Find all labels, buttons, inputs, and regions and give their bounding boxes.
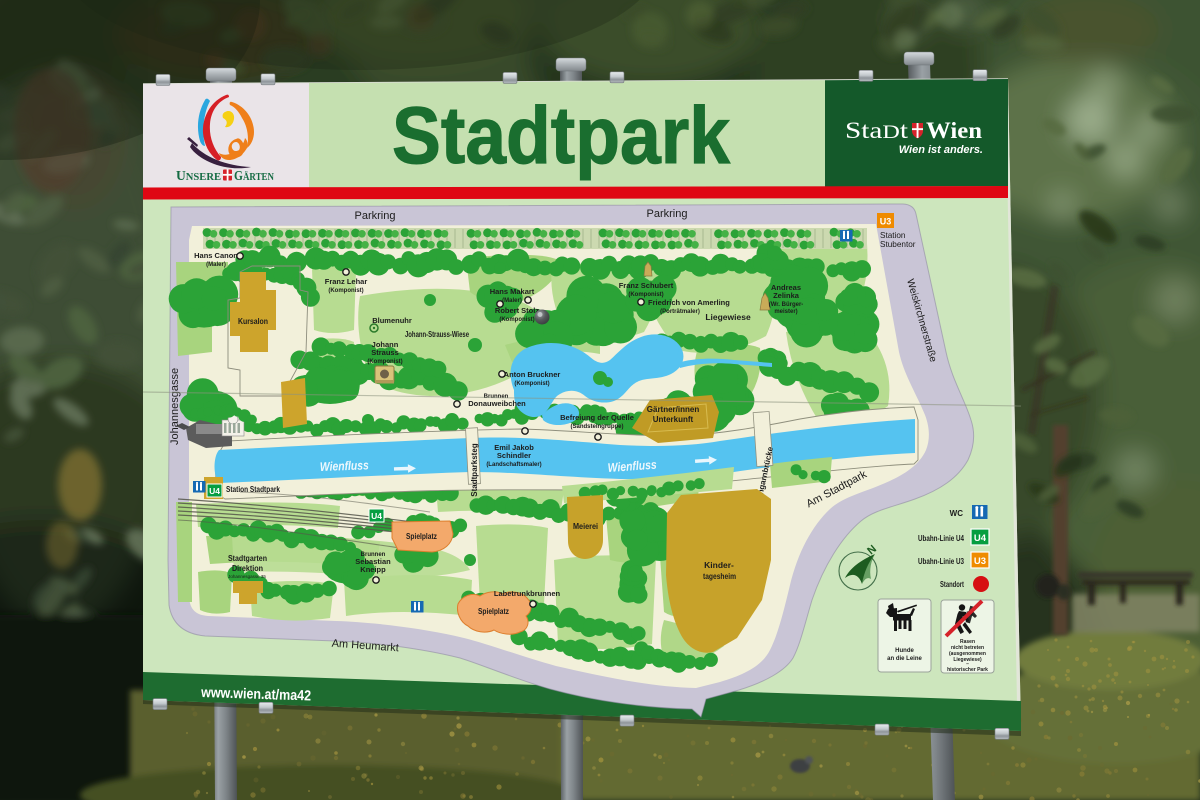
svg-text:(Komponist): (Komponist) [514, 381, 549, 387]
svg-text:Spielplatz: Spielplatz [406, 532, 437, 541]
svg-text:Wien: Wien [926, 118, 982, 143]
svg-text:(Komponist): (Komponist) [328, 288, 363, 294]
svg-text:U3: U3 [880, 217, 892, 227]
svg-text:Johannesgasse: Johannesgasse [169, 368, 181, 445]
svg-text:Parkring: Parkring [647, 208, 688, 220]
svg-text:Liegewiese: Liegewiese [705, 312, 751, 322]
svg-text:(Porträtmaler): (Porträtmaler) [660, 309, 700, 315]
svg-text:Station: Station [880, 231, 906, 240]
svg-text:Ubahn-Linie U4: Ubahn-Linie U4 [918, 534, 964, 543]
svg-text:Franz Schubert: Franz Schubert [619, 281, 674, 290]
svg-text:Strauss: Strauss [371, 348, 399, 357]
svg-text:(Komponist): (Komponist) [499, 317, 534, 323]
svg-text:Hans Canon: Hans Canon [194, 251, 238, 260]
svg-text:Johannesgasse 35: Johannesgasse 35 [228, 574, 266, 579]
svg-text:Stadtgarten: Stadtgarten [228, 553, 267, 563]
svg-text:U4: U4 [974, 533, 987, 544]
svg-text:tagesheim: tagesheim [703, 571, 736, 581]
svg-text:(Landschaftsmaler): (Landschaftsmaler) [486, 462, 541, 468]
svg-text:Gärtner/innen: Gärtner/innen [647, 405, 700, 414]
svg-text:Johann-Strauss-Wiese: Johann-Strauss-Wiese [405, 330, 469, 339]
svg-text:Kinder-: Kinder- [704, 560, 734, 570]
svg-text:(Sandsteingruppe): (Sandsteingruppe) [570, 424, 623, 430]
svg-text:Stubentor: Stubentor [880, 240, 916, 249]
svg-text:WC: WC [950, 509, 964, 518]
svg-text:Hans Makart: Hans Makart [490, 287, 535, 296]
svg-text:Spielplatz: Spielplatz [478, 607, 509, 616]
svg-text:Meierei: Meierei [573, 521, 598, 531]
svg-text:Stadtparksteg: Stadtparksteg [470, 443, 479, 496]
svg-text:U4: U4 [371, 511, 382, 521]
svg-text:StaDt: StaDt [845, 118, 909, 143]
svg-text:Wienfluss: Wienfluss [320, 458, 369, 474]
svg-text:Unterkunft: Unterkunft [653, 415, 694, 424]
svg-text:U3: U3 [974, 556, 986, 567]
svg-text:(Maler): (Maler) [206, 262, 226, 268]
svg-text:Robert Stolz: Robert Stolz [495, 306, 539, 315]
svg-text:Direktion: Direktion [232, 563, 263, 573]
svg-text:Station Stadtpark: Station Stadtpark [226, 485, 280, 494]
svg-text:(Komponist): (Komponist) [367, 359, 402, 365]
svg-text:Kursalon: Kursalon [238, 316, 268, 326]
svg-text:Befreiung der Quelle: Befreiung der Quelle [560, 413, 634, 422]
svg-text:Parkring: Parkring [355, 210, 396, 222]
svg-text:Schindler: Schindler [497, 451, 531, 460]
svg-text:Wien ist anders.: Wien ist anders. [899, 144, 983, 156]
svg-text:Zelinka: Zelinka [773, 291, 800, 300]
svg-text:(Maler): (Maler) [502, 298, 522, 304]
svg-text:Franz Lehar: Franz Lehar [325, 277, 368, 286]
svg-text:an die Leine: an die Leine [887, 656, 922, 662]
svg-text:Blumenuhr: Blumenuhr [372, 316, 412, 325]
svg-text:meister): meister) [774, 309, 797, 315]
svg-text:Kneipp: Kneipp [360, 565, 386, 574]
svg-text:Donauweibchen: Donauweibchen [468, 399, 526, 408]
svg-text:Friedrich von Amerling: Friedrich von Amerling [648, 298, 730, 307]
svg-text:Anton Bruckner: Anton Bruckner [504, 370, 561, 379]
svg-text:U4: U4 [209, 486, 220, 496]
svg-text:(Wr. Bürger-: (Wr. Bürger- [769, 302, 804, 308]
svg-text:Standort: Standort [940, 580, 964, 589]
svg-text:Ubahn-Linie U3: Ubahn-Linie U3 [918, 557, 964, 566]
svg-text:historischer Park: historischer Park [947, 667, 988, 673]
svg-text:Hunde: Hunde [895, 648, 914, 654]
svg-text:Labetrunkbrunnen: Labetrunkbrunnen [494, 589, 561, 598]
svg-text:Stadtpark: Stadtpark [392, 91, 731, 181]
